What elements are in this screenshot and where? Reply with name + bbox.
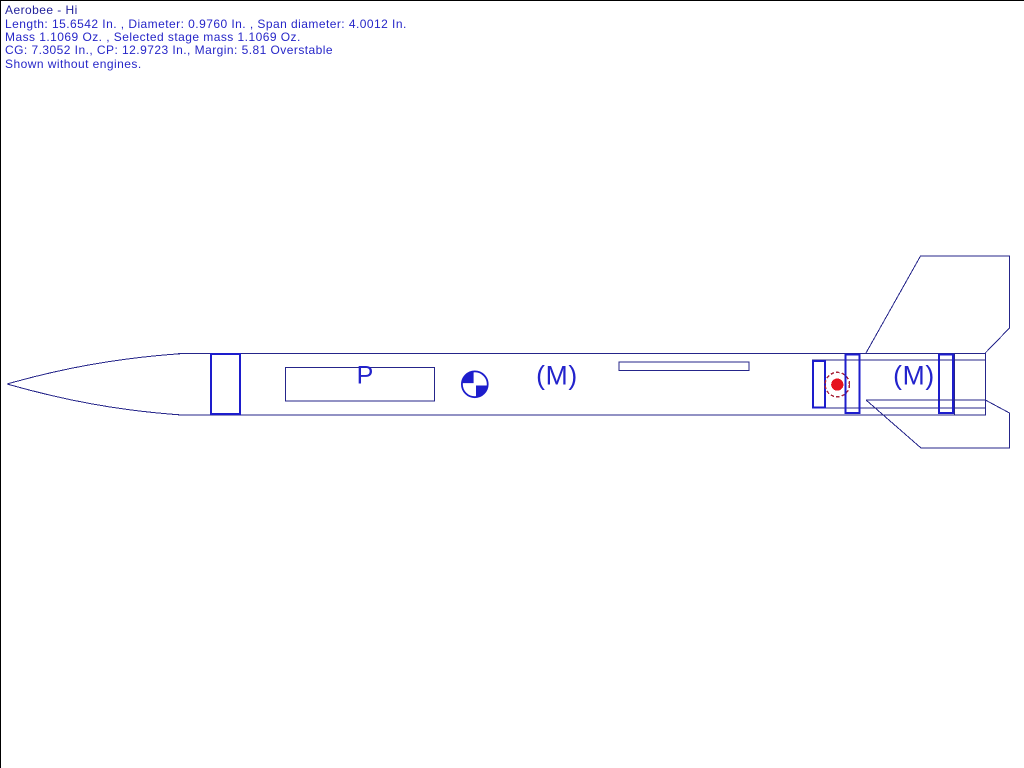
svg-text:(M): (M) — [536, 360, 578, 390]
svg-text:P: P — [357, 362, 374, 390]
svg-text:(M): (M) — [893, 360, 935, 390]
